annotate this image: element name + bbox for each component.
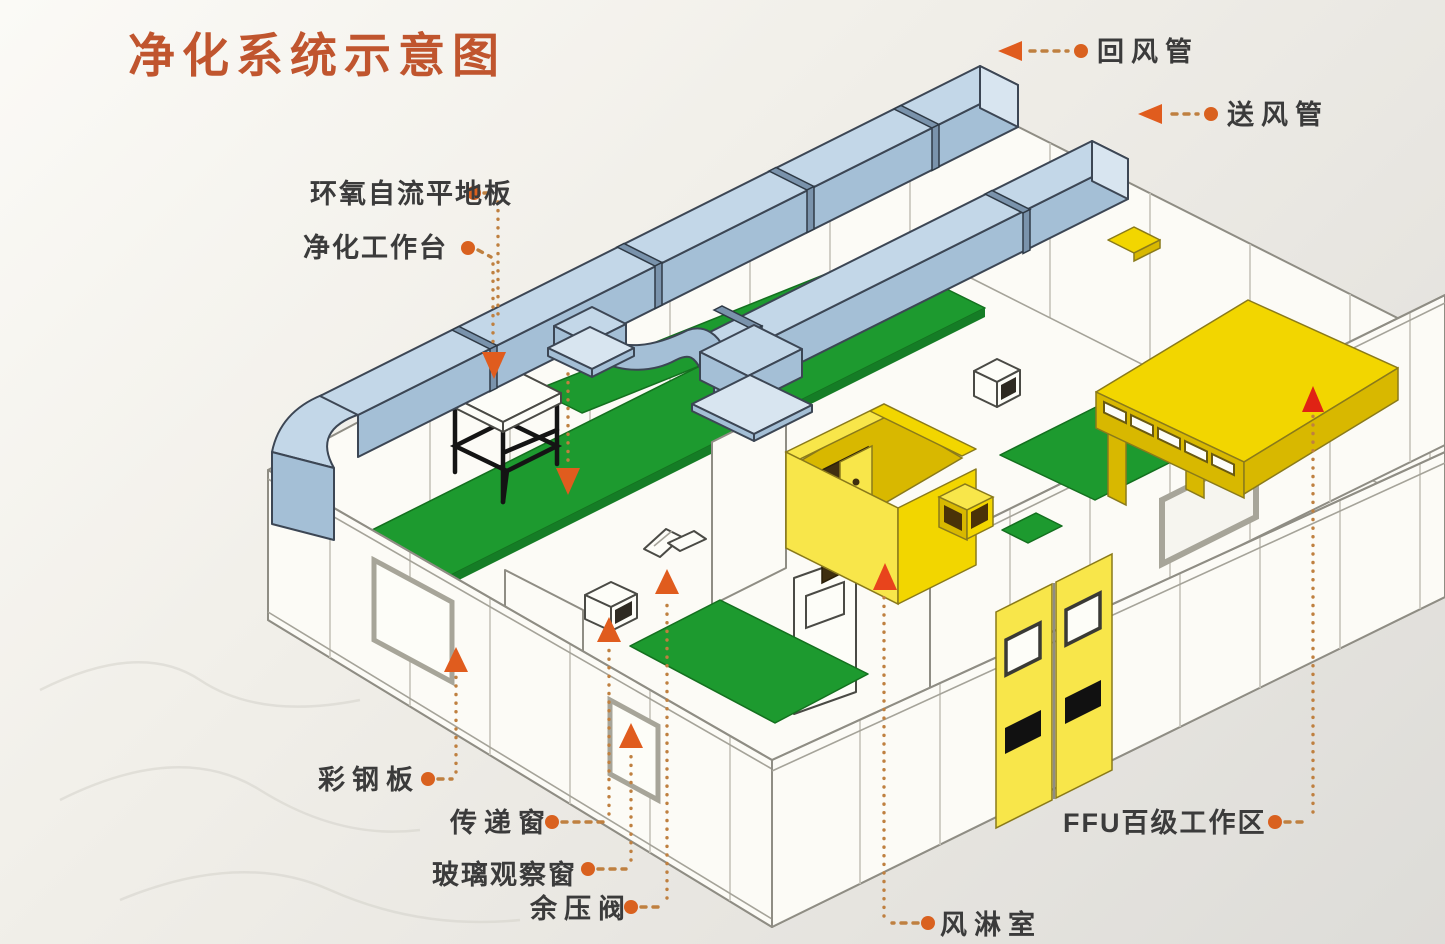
label-supply-duct: 送风管 — [1227, 100, 1329, 130]
dot-return-duct — [1074, 44, 1088, 58]
door-right — [1056, 554, 1112, 798]
arrow-return-duct — [998, 41, 1022, 61]
dot-color-steel — [421, 772, 435, 786]
label-transfer-window: 传递窗 — [449, 807, 552, 838]
label-color-steel-panel: 彩钢板 — [318, 765, 420, 795]
label-residual-pressure-valve: 余压阀 — [529, 893, 632, 924]
dot-glass-window — [581, 862, 595, 876]
return-duct-drop — [272, 452, 334, 540]
dot-supply-duct — [1204, 107, 1218, 121]
dot-ffu-area — [1268, 815, 1282, 829]
arrow-supply-duct — [1138, 104, 1162, 124]
door-left — [996, 584, 1052, 828]
label-glass-observation-window: 玻璃观察窗 — [432, 859, 577, 890]
isometric-cleanroom-scene: 净化系统示意图 回风管 送风管 环氧自流平地板 净化工作台 彩钢板 传递窗 玻璃… — [0, 0, 1445, 944]
label-clean-workbench: 净化工作台 — [303, 232, 448, 263]
cleanroom-diagram-page: 净化系统示意图 回风管 送风管 环氧自流平地板 净化工作台 彩钢板 传递窗 玻璃… — [0, 0, 1445, 944]
label-ffu-class100-area: FFU百级工作区 — [1063, 807, 1266, 838]
label-return-duct: 回风管 — [1097, 37, 1199, 67]
dot-workbench — [461, 241, 475, 255]
label-air-shower: 风淋室 — [940, 909, 1042, 940]
dot-air-shower — [921, 916, 935, 930]
page-title: 净化系统示意图 — [128, 31, 506, 83]
label-epoxy-floor: 环氧自流平地板 — [310, 178, 513, 209]
